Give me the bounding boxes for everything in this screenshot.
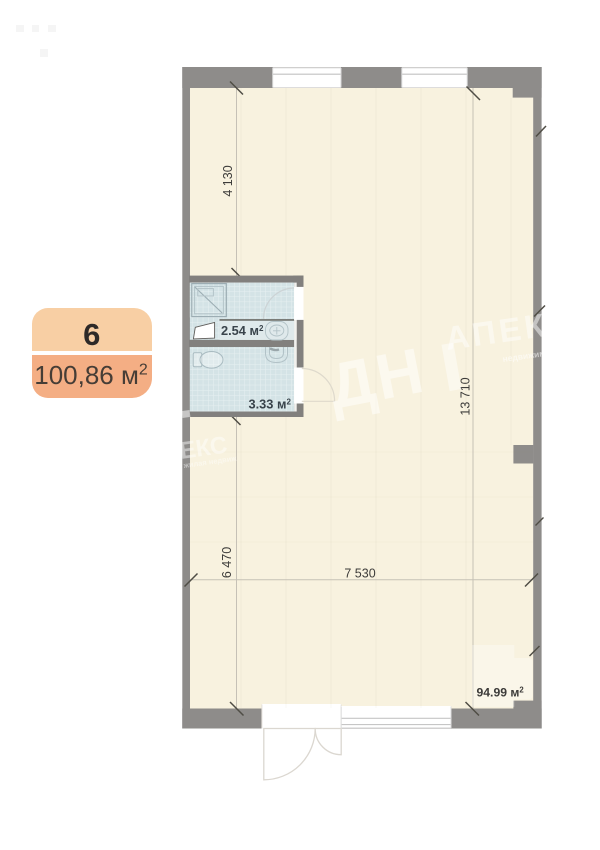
svg-text:3.33 м2: 3.33 м2 <box>249 397 292 412</box>
svg-text:7 530: 7 530 <box>344 567 375 581</box>
svg-text:2.54 м2: 2.54 м2 <box>221 323 264 338</box>
svg-text:94.99 м2: 94.99 м2 <box>477 686 525 700</box>
svg-text:4 130: 4 130 <box>221 165 235 196</box>
svg-text:6 470: 6 470 <box>220 547 234 578</box>
svg-text:13 710: 13 710 <box>459 377 473 415</box>
